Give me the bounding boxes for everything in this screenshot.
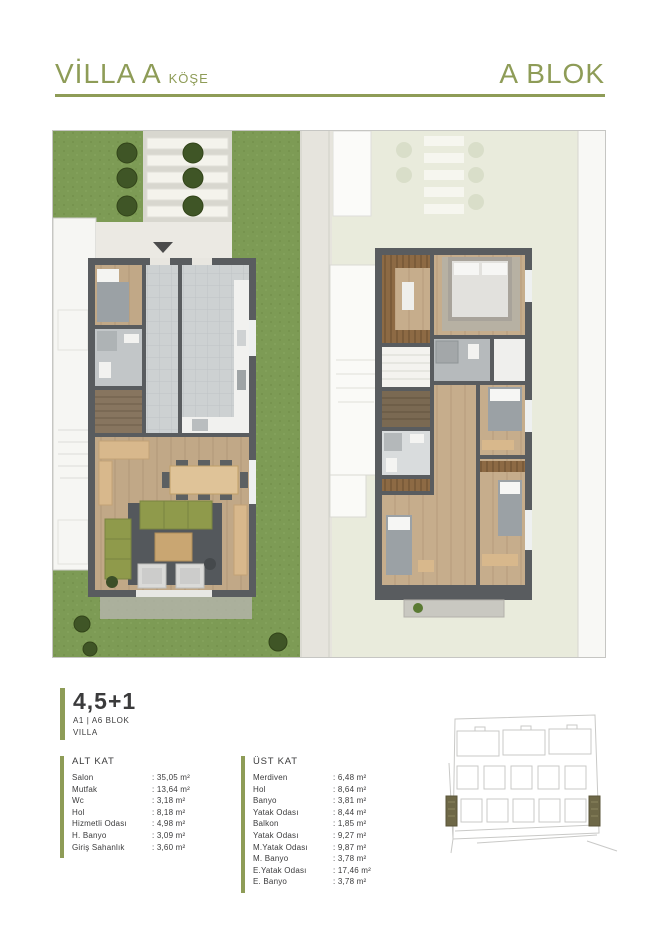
dining-table: [162, 460, 248, 500]
balcony: [404, 600, 504, 617]
header-rule: [55, 94, 605, 97]
window: [525, 400, 532, 432]
brochure-page: VİLLA AKÖŞE A BLOK: [0, 0, 660, 933]
table-row: Merdiven: 6,48 m²: [253, 772, 391, 784]
room-hol-ust: [434, 385, 476, 585]
room-hol: [146, 265, 178, 433]
table-row: Hol: 8,18 m²: [72, 807, 210, 819]
table-row: Yatak Odası: 8,44 m²: [253, 807, 391, 819]
table-row: M. Banyo: 3,78 m²: [253, 853, 391, 865]
window: [525, 270, 532, 302]
room-yatak-odasi-3: [480, 459, 525, 585]
table-row: Hizmetli Odası: 4,98 m²: [72, 818, 210, 830]
alt-kat-table: ALT KAT Salon: 35,05 m² Mutfak: 13,64 m²…: [60, 756, 210, 858]
floor-plans: [52, 130, 606, 658]
room-mutfak: [182, 265, 249, 433]
plant: [106, 576, 118, 588]
side-road-ghost: [578, 131, 605, 657]
table-row: Balkon: 1,85 m²: [253, 818, 391, 830]
terrace-door: [136, 590, 212, 597]
villa-title: VİLLA A: [55, 58, 162, 89]
wardrobe: [382, 479, 430, 491]
unit-type: 4,5+1: [73, 688, 136, 714]
room-dressing: [382, 255, 430, 343]
table-row: H. Banyo: 3,09 m²: [72, 830, 210, 842]
table-row: E.Yatak Odası: 17,46 m²: [253, 865, 391, 877]
site-plan-svg: [437, 703, 637, 883]
coffee-table: [155, 533, 192, 561]
accent-bar: [60, 688, 65, 740]
terrace: [100, 595, 252, 619]
floor-plans-svg: [52, 130, 606, 658]
accent-bar: [60, 756, 64, 858]
page-title: VİLLA AKÖŞE: [55, 58, 209, 90]
window: [249, 320, 256, 356]
alt-kat-title: ALT KAT: [72, 756, 210, 767]
accent-bar: [241, 756, 245, 893]
room-yatak-odasi-2: [480, 385, 525, 455]
room-e-banyo: [382, 431, 430, 475]
unit-label: VILLA: [73, 728, 136, 738]
window: [249, 460, 256, 504]
table-row: Yatak Odası: 9,27 m²: [253, 830, 391, 842]
room-yatak-odasi-1: [382, 495, 442, 585]
room-banyo: [95, 329, 142, 386]
room-m-yatak-odasi: [434, 255, 525, 335]
table-row: Hol: 8,64 m²: [253, 784, 391, 796]
room-hizmetli-odasi: [95, 265, 142, 325]
site-key-plan: [437, 703, 637, 888]
table-row: M.Yatak Odası: 9,87 m²: [253, 842, 391, 854]
floor-lamp: [204, 558, 216, 570]
stairs-upper: [382, 347, 430, 427]
table-row: Giriş Sahanlık: 3,60 m²: [72, 842, 210, 854]
unit-info: 4,5+1 A1 | A6 BLOK VILLA: [60, 688, 136, 740]
door-opening: [192, 258, 212, 265]
room-salon: [95, 437, 249, 590]
table-row: Banyo: 3,81 m²: [253, 795, 391, 807]
villa-title-suffix: KÖŞE: [169, 71, 209, 86]
room-banyo-ust: [434, 339, 525, 381]
table-row: Salon: 35,05 m²: [72, 772, 210, 784]
window: [525, 510, 532, 550]
road-strip: [300, 131, 332, 657]
ust-kat-title: ÜST KAT: [253, 756, 391, 767]
table-row: Wc: 3,18 m²: [72, 795, 210, 807]
stairs-ground: [95, 390, 142, 433]
console: [234, 505, 247, 575]
unit-blocks: A1 | A6 BLOK: [73, 716, 136, 726]
table-row: Mutfak: 13,64 m²: [72, 784, 210, 796]
header: VİLLA AKÖŞE A BLOK: [55, 58, 605, 97]
ground-floor-plan: [53, 131, 300, 657]
upper-floor-plan: [330, 131, 605, 657]
table-row: E. Banyo: 3,78 m²: [253, 876, 391, 888]
balcony-plant: [413, 603, 423, 613]
block-title: A BLOK: [499, 58, 605, 90]
ust-kat-table: ÜST KAT Merdiven: 6,48 m² Hol: 8,64 m² B…: [241, 756, 391, 893]
door-opening: [150, 258, 170, 265]
